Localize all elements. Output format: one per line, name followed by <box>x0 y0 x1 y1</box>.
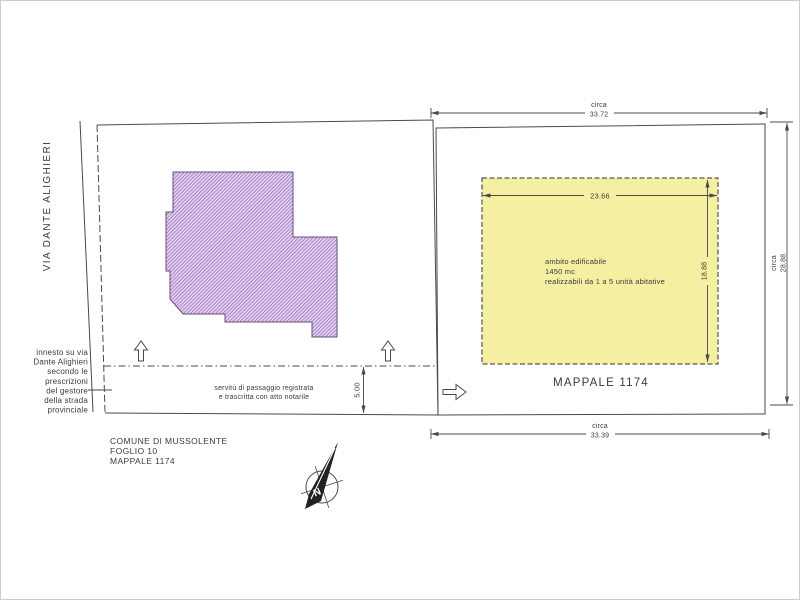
entry-note-line4: prescrizioni <box>45 377 88 386</box>
building-footprint <box>166 172 337 337</box>
dim-buildable-depth: 18.88 <box>702 262 709 281</box>
site-plan-page: 23.66 18.88 ambito edificabile 1450 mc r… <box>0 0 800 600</box>
dim-top-value: 33.72 <box>590 112 609 119</box>
dim-right-value: 28.88 <box>781 254 788 273</box>
easement-note-line1: servitù di passaggio registrata <box>214 385 313 392</box>
title-block-line1: COMUNE DI MUSSOLENTE <box>110 436 228 446</box>
dim-buildable-width: 23.66 <box>590 192 610 201</box>
entry-note-line6: della strada <box>44 396 88 405</box>
buildable-note-line3: realizzabili da 1 a 5 unità abitative <box>545 277 665 286</box>
dim-easement-width: 5.00 <box>353 382 362 397</box>
right-arrow-icon <box>443 385 466 400</box>
entry-note-line7: provinciale <box>48 406 89 415</box>
road-name-label: VIA DANTE ALIGHIERI <box>42 141 53 272</box>
dim-right-approx: circa <box>771 255 778 271</box>
title-block-line2: FOGLIO 10 <box>110 446 158 456</box>
easement-note-line2: e trascritta con atto notarile <box>219 394 309 401</box>
buildable-note-line2: 1450 mc <box>545 267 575 276</box>
parcel-label: MAPPALE 1174 <box>553 377 649 389</box>
north-compass: N <box>294 442 349 515</box>
title-block-line3: MAPPALE 1174 <box>110 456 175 466</box>
parcel-west-boundary-line <box>97 125 105 413</box>
entry-note-line5: del gestore <box>46 386 88 395</box>
buildable-area <box>482 178 718 364</box>
site-plan-drawing: 23.66 18.88 ambito edificabile 1450 mc r… <box>0 0 800 600</box>
entry-note-line2: Dante Alighieri <box>33 358 88 367</box>
dim-bottom-value: 33.39 <box>591 433 610 440</box>
buildable-note-line1: ambito edificabile <box>545 257 607 266</box>
dim-bottom-approx: circa <box>592 423 608 430</box>
entry-note-line3: secondo le <box>47 367 88 376</box>
up-arrow-icon <box>135 341 148 361</box>
dim-top-approx: circa <box>591 102 607 109</box>
entry-note-line1: innesto su via <box>36 348 88 357</box>
up-arrow-icon <box>382 341 395 361</box>
